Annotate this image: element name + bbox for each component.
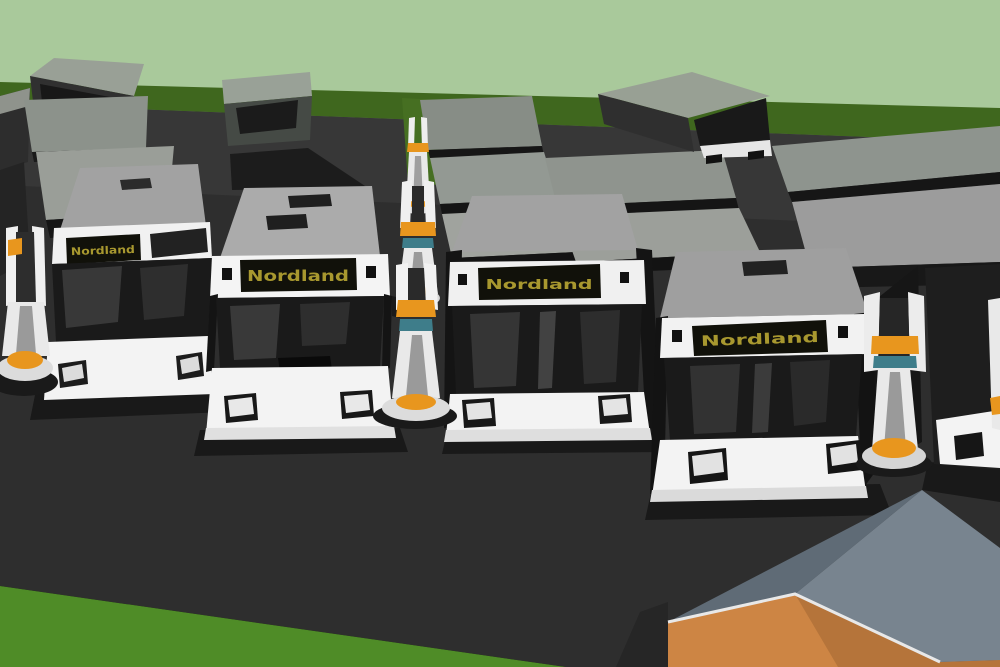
bus-front-far-right xyxy=(922,264,1000,502)
headlight-lens xyxy=(228,397,254,417)
roof-hatch xyxy=(288,194,332,208)
headlight xyxy=(954,432,984,460)
marker-light xyxy=(672,330,682,342)
charger-base-pad xyxy=(396,394,436,410)
charger-base-pad xyxy=(7,351,43,369)
side-mirror xyxy=(198,296,206,320)
charger-prong xyxy=(400,180,412,228)
roof-hatch xyxy=(120,178,152,190)
bus-roof xyxy=(24,96,148,152)
bus-roof xyxy=(420,96,542,150)
charger-slot xyxy=(412,186,424,226)
bus-depot-render: Nordland Nordland xyxy=(0,0,1000,667)
roof-hatch xyxy=(742,260,788,276)
destination-sign-text: Nordland xyxy=(247,267,349,285)
depot-scene-canvas: Nordland Nordland xyxy=(0,0,1000,667)
destination-sign-text: Nordland xyxy=(71,244,135,258)
marker-light xyxy=(366,266,376,278)
charger-band xyxy=(8,238,22,256)
windshield-reflection xyxy=(62,266,122,328)
headlight-lens xyxy=(602,398,628,416)
windshield-reflection xyxy=(580,310,620,384)
marker-light xyxy=(620,272,629,283)
marker-light xyxy=(458,274,467,285)
windshield-reflection xyxy=(140,264,188,320)
charger-band-teal xyxy=(402,238,434,248)
headlight-lens xyxy=(344,394,370,413)
windshield-reflection xyxy=(790,360,830,426)
headlight-lens xyxy=(466,402,492,420)
marker-light xyxy=(838,326,848,338)
headlight-lens xyxy=(692,452,724,476)
bumper-edge xyxy=(444,428,652,442)
roof-hatch xyxy=(266,214,308,230)
bumper-edge xyxy=(204,426,396,440)
charger-band-teal xyxy=(873,356,917,368)
windshield-reflection xyxy=(230,304,280,360)
bus-roof xyxy=(452,194,638,252)
charger-prong xyxy=(424,180,436,228)
charger-band xyxy=(400,222,436,236)
charger-band xyxy=(407,143,429,152)
bus-roof xyxy=(660,248,868,318)
charger-band xyxy=(871,336,919,354)
windshield-reflection xyxy=(690,364,740,434)
bus-roof xyxy=(60,164,206,230)
windshield-reflection xyxy=(300,302,350,346)
windshield-reflection xyxy=(470,312,520,388)
charger-band xyxy=(396,300,436,317)
destination-sign-text: Nordland xyxy=(486,277,593,293)
charger-band-teal xyxy=(399,319,433,331)
marker-light xyxy=(222,268,232,280)
charger-base-pad xyxy=(872,438,916,458)
